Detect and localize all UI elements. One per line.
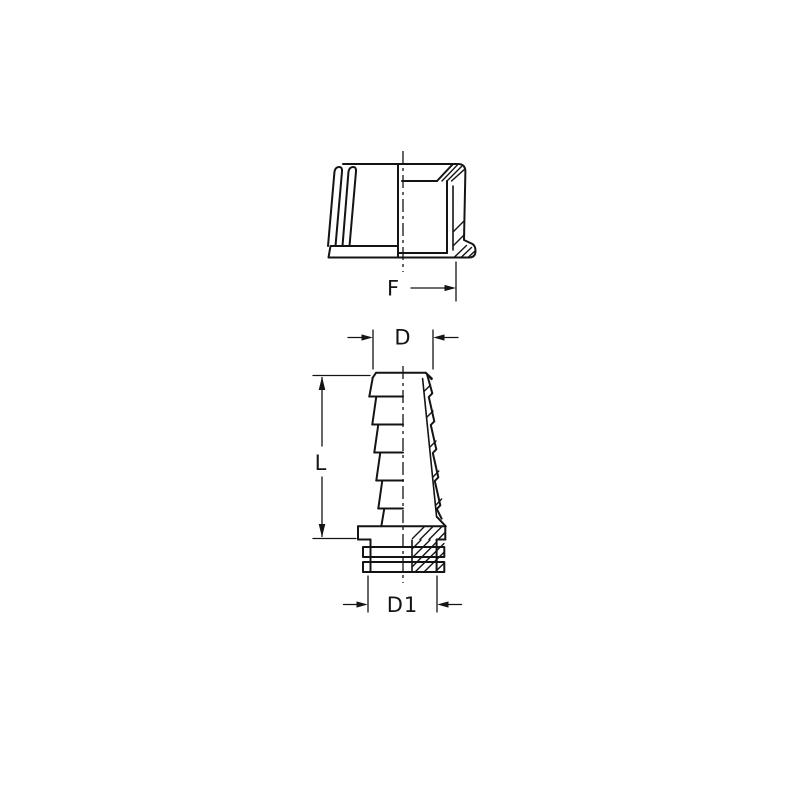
dimension-f: F: [387, 262, 456, 301]
dimension-f-label: F: [387, 277, 400, 301]
arrowhead-right-icon: [357, 601, 368, 607]
barb-fitting-view: [358, 366, 446, 583]
arrowhead-left-icon: [437, 601, 448, 607]
dimension-d: D: [348, 326, 458, 370]
technical-drawing: F: [0, 0, 800, 800]
arrowhead-right-icon: [445, 285, 457, 291]
arrowhead-left-icon: [433, 334, 444, 340]
arrowhead-right-icon: [362, 334, 373, 340]
dimension-d1-label: D1: [387, 593, 419, 617]
fitting-outline: [358, 373, 446, 572]
dimension-d-label: D: [394, 326, 411, 350]
dimension-l: L: [313, 376, 370, 539]
dimension-l-label: L: [315, 451, 328, 475]
fitting-hatching: [412, 385, 445, 572]
cap-half-section-view: [328, 151, 476, 272]
cap-ribs: [328, 167, 356, 246]
drawing-sheet: F: [0, 0, 800, 800]
arrowhead-down-icon: [319, 524, 326, 537]
arrowhead-up-icon: [319, 377, 326, 390]
